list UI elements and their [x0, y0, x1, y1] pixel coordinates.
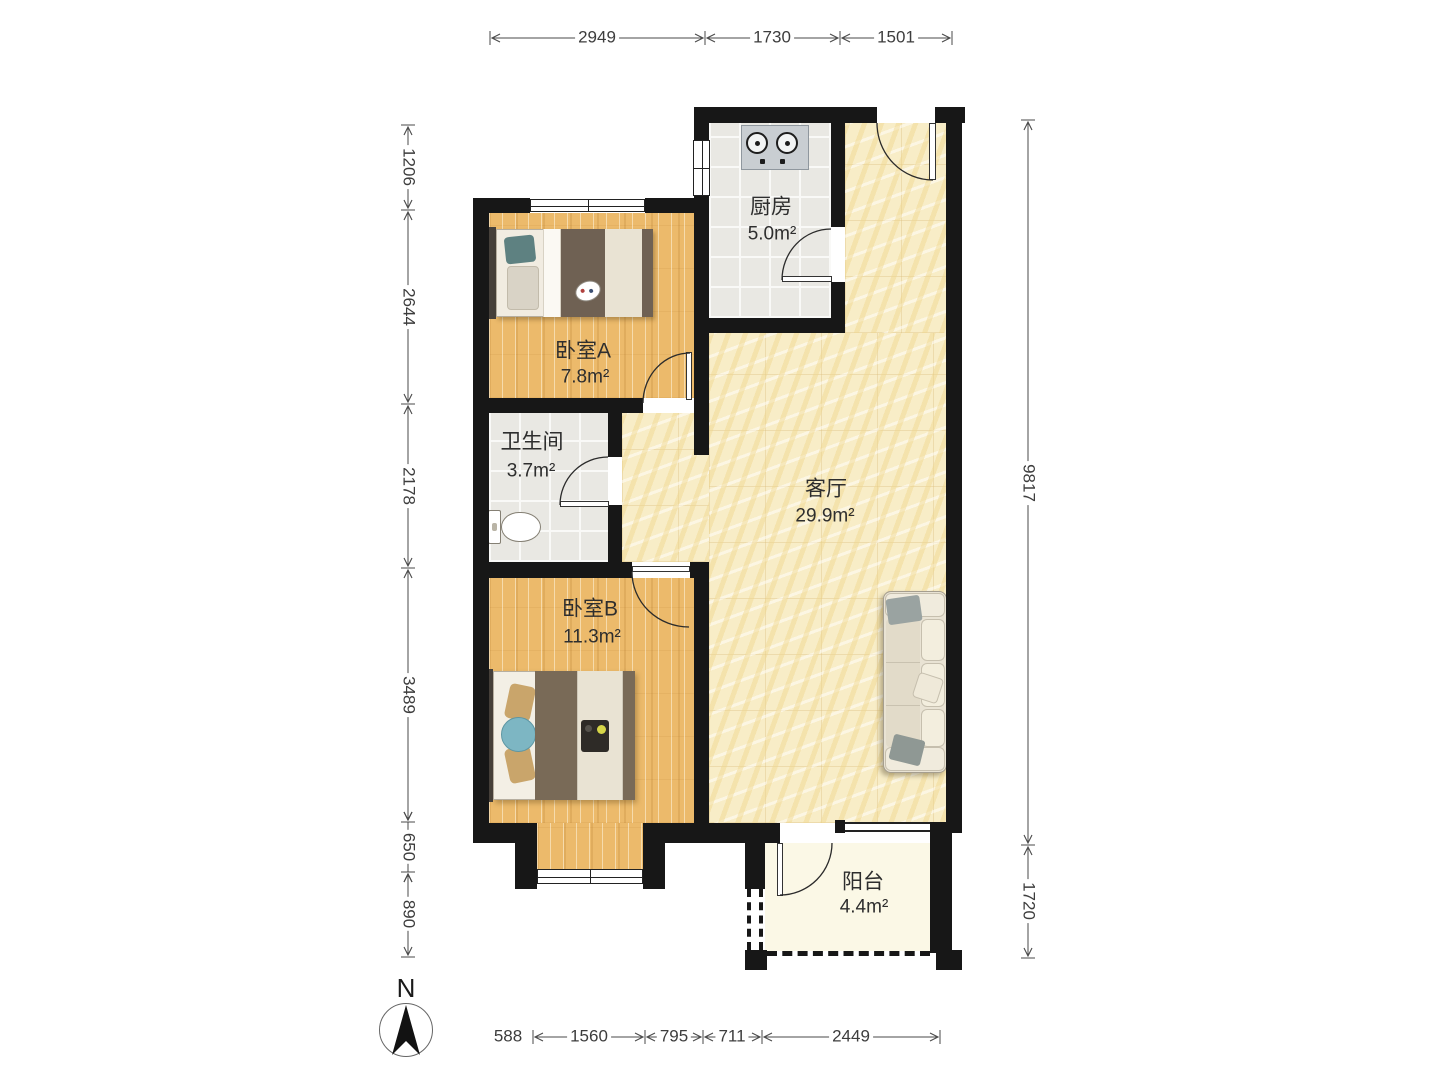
- wall-segment: [694, 107, 877, 123]
- kitchen-window: [693, 140, 710, 196]
- bed-tray: [581, 720, 609, 752]
- bay-window: [537, 869, 643, 884]
- wall-segment: [515, 843, 537, 889]
- sofa-cushion: [921, 619, 945, 661]
- burner-icon: [746, 132, 768, 154]
- wall-segment: [936, 950, 962, 970]
- wall-segment: [473, 562, 632, 578]
- wall-segment: [694, 333, 709, 455]
- balcony-dashed-wall: [747, 889, 763, 950]
- wall-segment: [694, 562, 709, 843]
- dim-top-3: 1501: [874, 29, 918, 48]
- sofa-icon: [883, 591, 947, 773]
- dim-top-1: 2949: [575, 29, 619, 48]
- wall-segment: [473, 398, 643, 413]
- bedroom-a-window: [530, 199, 645, 212]
- dim-top-2: 1730: [750, 29, 794, 48]
- bedroom-a-door-leaf: [686, 352, 692, 400]
- wall-segment: [745, 843, 765, 889]
- room-name-bedroom-a: 卧室A: [555, 341, 611, 362]
- wall-segment: [694, 318, 845, 333]
- dim-bottom-1: 588: [491, 1028, 525, 1047]
- toilet-bowl: [501, 512, 541, 542]
- wall-segment: [608, 505, 622, 562]
- stove-knob: [780, 159, 785, 164]
- floor-plan-canvas: 厨房 5.0m² 卧室A 7.8m² 卫生间 3.7m² 客厅 29.9m² 卧…: [0, 0, 1440, 1080]
- wall-segment: [831, 107, 845, 227]
- entry-door-leaf: [929, 123, 936, 180]
- burner-icon: [776, 132, 798, 154]
- bed-blanket: [561, 229, 605, 317]
- bathroom-door-leaf: [560, 501, 609, 507]
- stove-icon: [741, 125, 809, 170]
- kitchen-door-leaf: [782, 276, 832, 282]
- wall-segment: [645, 198, 709, 213]
- dim-left-6: 890: [399, 897, 418, 931]
- balcony-dashed-edge: [767, 951, 930, 956]
- room-area-bedroom-a: 7.8m²: [561, 368, 610, 387]
- dim-left-5: 650: [399, 830, 418, 864]
- wall-segment: [473, 823, 537, 843]
- dim-bottom-5: 2449: [829, 1028, 873, 1047]
- dim-bottom-2: 1560: [567, 1028, 611, 1047]
- bedroom-b-bay-floor: [537, 823, 643, 871]
- dim-left-3: 2178: [399, 464, 418, 508]
- wall-segment: [745, 950, 767, 970]
- stove-knob: [760, 159, 765, 164]
- room-area-kitchen: 5.0m²: [748, 225, 797, 244]
- sliding-door-stop: [835, 820, 845, 833]
- dim-right-1: 9817: [1019, 461, 1038, 505]
- dim-left-1: 1206: [399, 145, 418, 189]
- wall-segment: [694, 196, 709, 333]
- wall-segment: [930, 822, 952, 953]
- toilet-icon: [488, 508, 542, 546]
- wall-segment: [473, 198, 489, 843]
- dim-right-2: 1720: [1019, 879, 1038, 923]
- dim-left-2: 2644: [399, 285, 418, 329]
- room-name-bedroom-b: 卧室B: [562, 599, 618, 620]
- dim-left-4: 3489: [399, 673, 418, 717]
- wall-segment: [694, 107, 709, 140]
- bed-b-icon: [485, 669, 635, 802]
- sofa-throw: [885, 595, 922, 625]
- dim-bottom-3: 795: [657, 1028, 691, 1047]
- room-name-kitchen: 厨房: [750, 197, 792, 218]
- room-area-bedroom-b: 11.3m²: [563, 628, 621, 647]
- compass-north-label: N: [397, 975, 416, 1001]
- bed-headboard: [489, 227, 496, 319]
- room-area-bathroom: 3.7m²: [507, 462, 556, 481]
- room-area-balcony: 4.4m²: [840, 898, 889, 917]
- room-name-balcony: 阳台: [842, 872, 884, 893]
- pillow: [507, 266, 539, 310]
- wall-segment: [643, 843, 665, 889]
- wall-segment: [694, 823, 780, 843]
- wall-segment: [608, 413, 622, 457]
- balcony-door-leaf: [777, 843, 783, 896]
- bed-a-icon: [489, 227, 653, 319]
- round-pillow: [501, 717, 536, 752]
- balcony-sliding-door: [838, 822, 930, 832]
- dim-bottom-4: 711: [715, 1028, 748, 1047]
- bedroom-b-door-leaf: [632, 566, 690, 572]
- pillow: [504, 235, 537, 265]
- room-name-living: 客厅: [805, 479, 847, 500]
- room-name-bathroom: 卫生间: [501, 432, 564, 453]
- room-area-living: 29.9m²: [795, 507, 854, 526]
- wall-segment: [946, 107, 962, 833]
